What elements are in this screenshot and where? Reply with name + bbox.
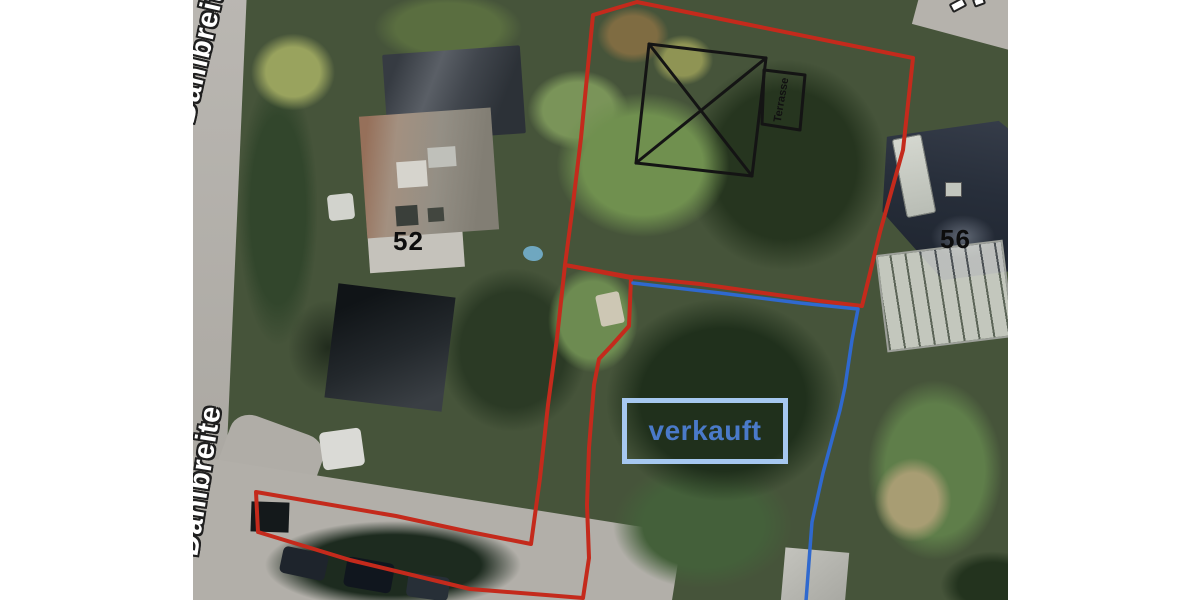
screenshot-canvas: Dahlbreite Dahlbreite 52 56 verkauft Ter… [0, 0, 1200, 600]
parked-van-white [319, 427, 366, 470]
dark-wall-structure [250, 501, 289, 532]
left-white-margin [0, 0, 193, 600]
house-52-lower-roof [359, 108, 499, 239]
label-fragment-mark [949, 0, 968, 13]
right-white-margin [1008, 0, 1200, 600]
house-number-56: 56 [940, 224, 971, 255]
roof-skylight [396, 160, 428, 188]
shed-roof [781, 547, 849, 600]
roof-window [395, 205, 418, 226]
garage-roof [324, 283, 455, 412]
label-fragment-mark [972, 0, 986, 8]
sold-badge-text: verkauft [649, 415, 762, 447]
chimney [945, 182, 962, 197]
terrace-label: Terrasse [759, 70, 805, 130]
aerial-photo: Dahlbreite Dahlbreite 52 56 verkauft Ter… [193, 0, 1008, 600]
sold-badge-box: verkauft [622, 398, 788, 464]
house-number-52: 52 [393, 226, 424, 257]
street-label-fragment [945, 0, 1005, 18]
terrace-label-text: Terrasse [772, 77, 792, 123]
greenhouse [876, 240, 1008, 353]
roof-window [427, 207, 444, 222]
parked-car-dark [406, 572, 451, 600]
parked-car-white [327, 193, 356, 222]
roof-skylight [427, 146, 456, 168]
